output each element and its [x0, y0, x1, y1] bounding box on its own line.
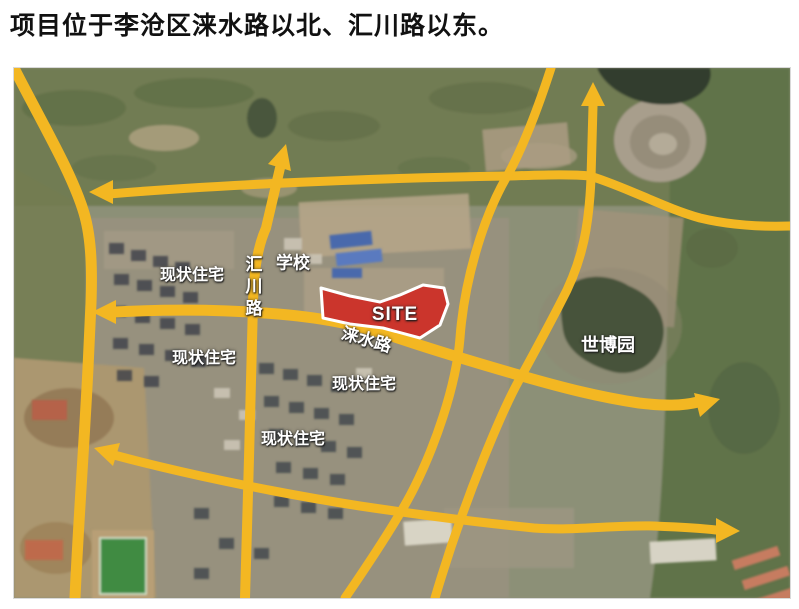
site-location-map: 现状住宅 现状住宅 现状住宅 现状住宅 学校 汇川路 涞水路 世博园 SITE	[14, 68, 790, 598]
label-huichuan-road: 汇川路	[240, 255, 265, 321]
football-pitch	[100, 538, 146, 594]
label-residential-w: 现状住宅	[172, 344, 236, 368]
label-residential-center: 现状住宅	[332, 370, 396, 394]
page-title: 项目位于李沧区涞水路以北、汇川路以东。	[10, 6, 504, 42]
label-school: 学校	[276, 249, 310, 274]
label-expo-park: 世博园	[581, 331, 635, 357]
label-residential-south: 现状住宅	[261, 425, 325, 449]
satellite-map-canvas	[14, 68, 790, 598]
label-site: SITE	[372, 304, 418, 326]
label-residential-nw: 现状住宅	[160, 261, 224, 285]
